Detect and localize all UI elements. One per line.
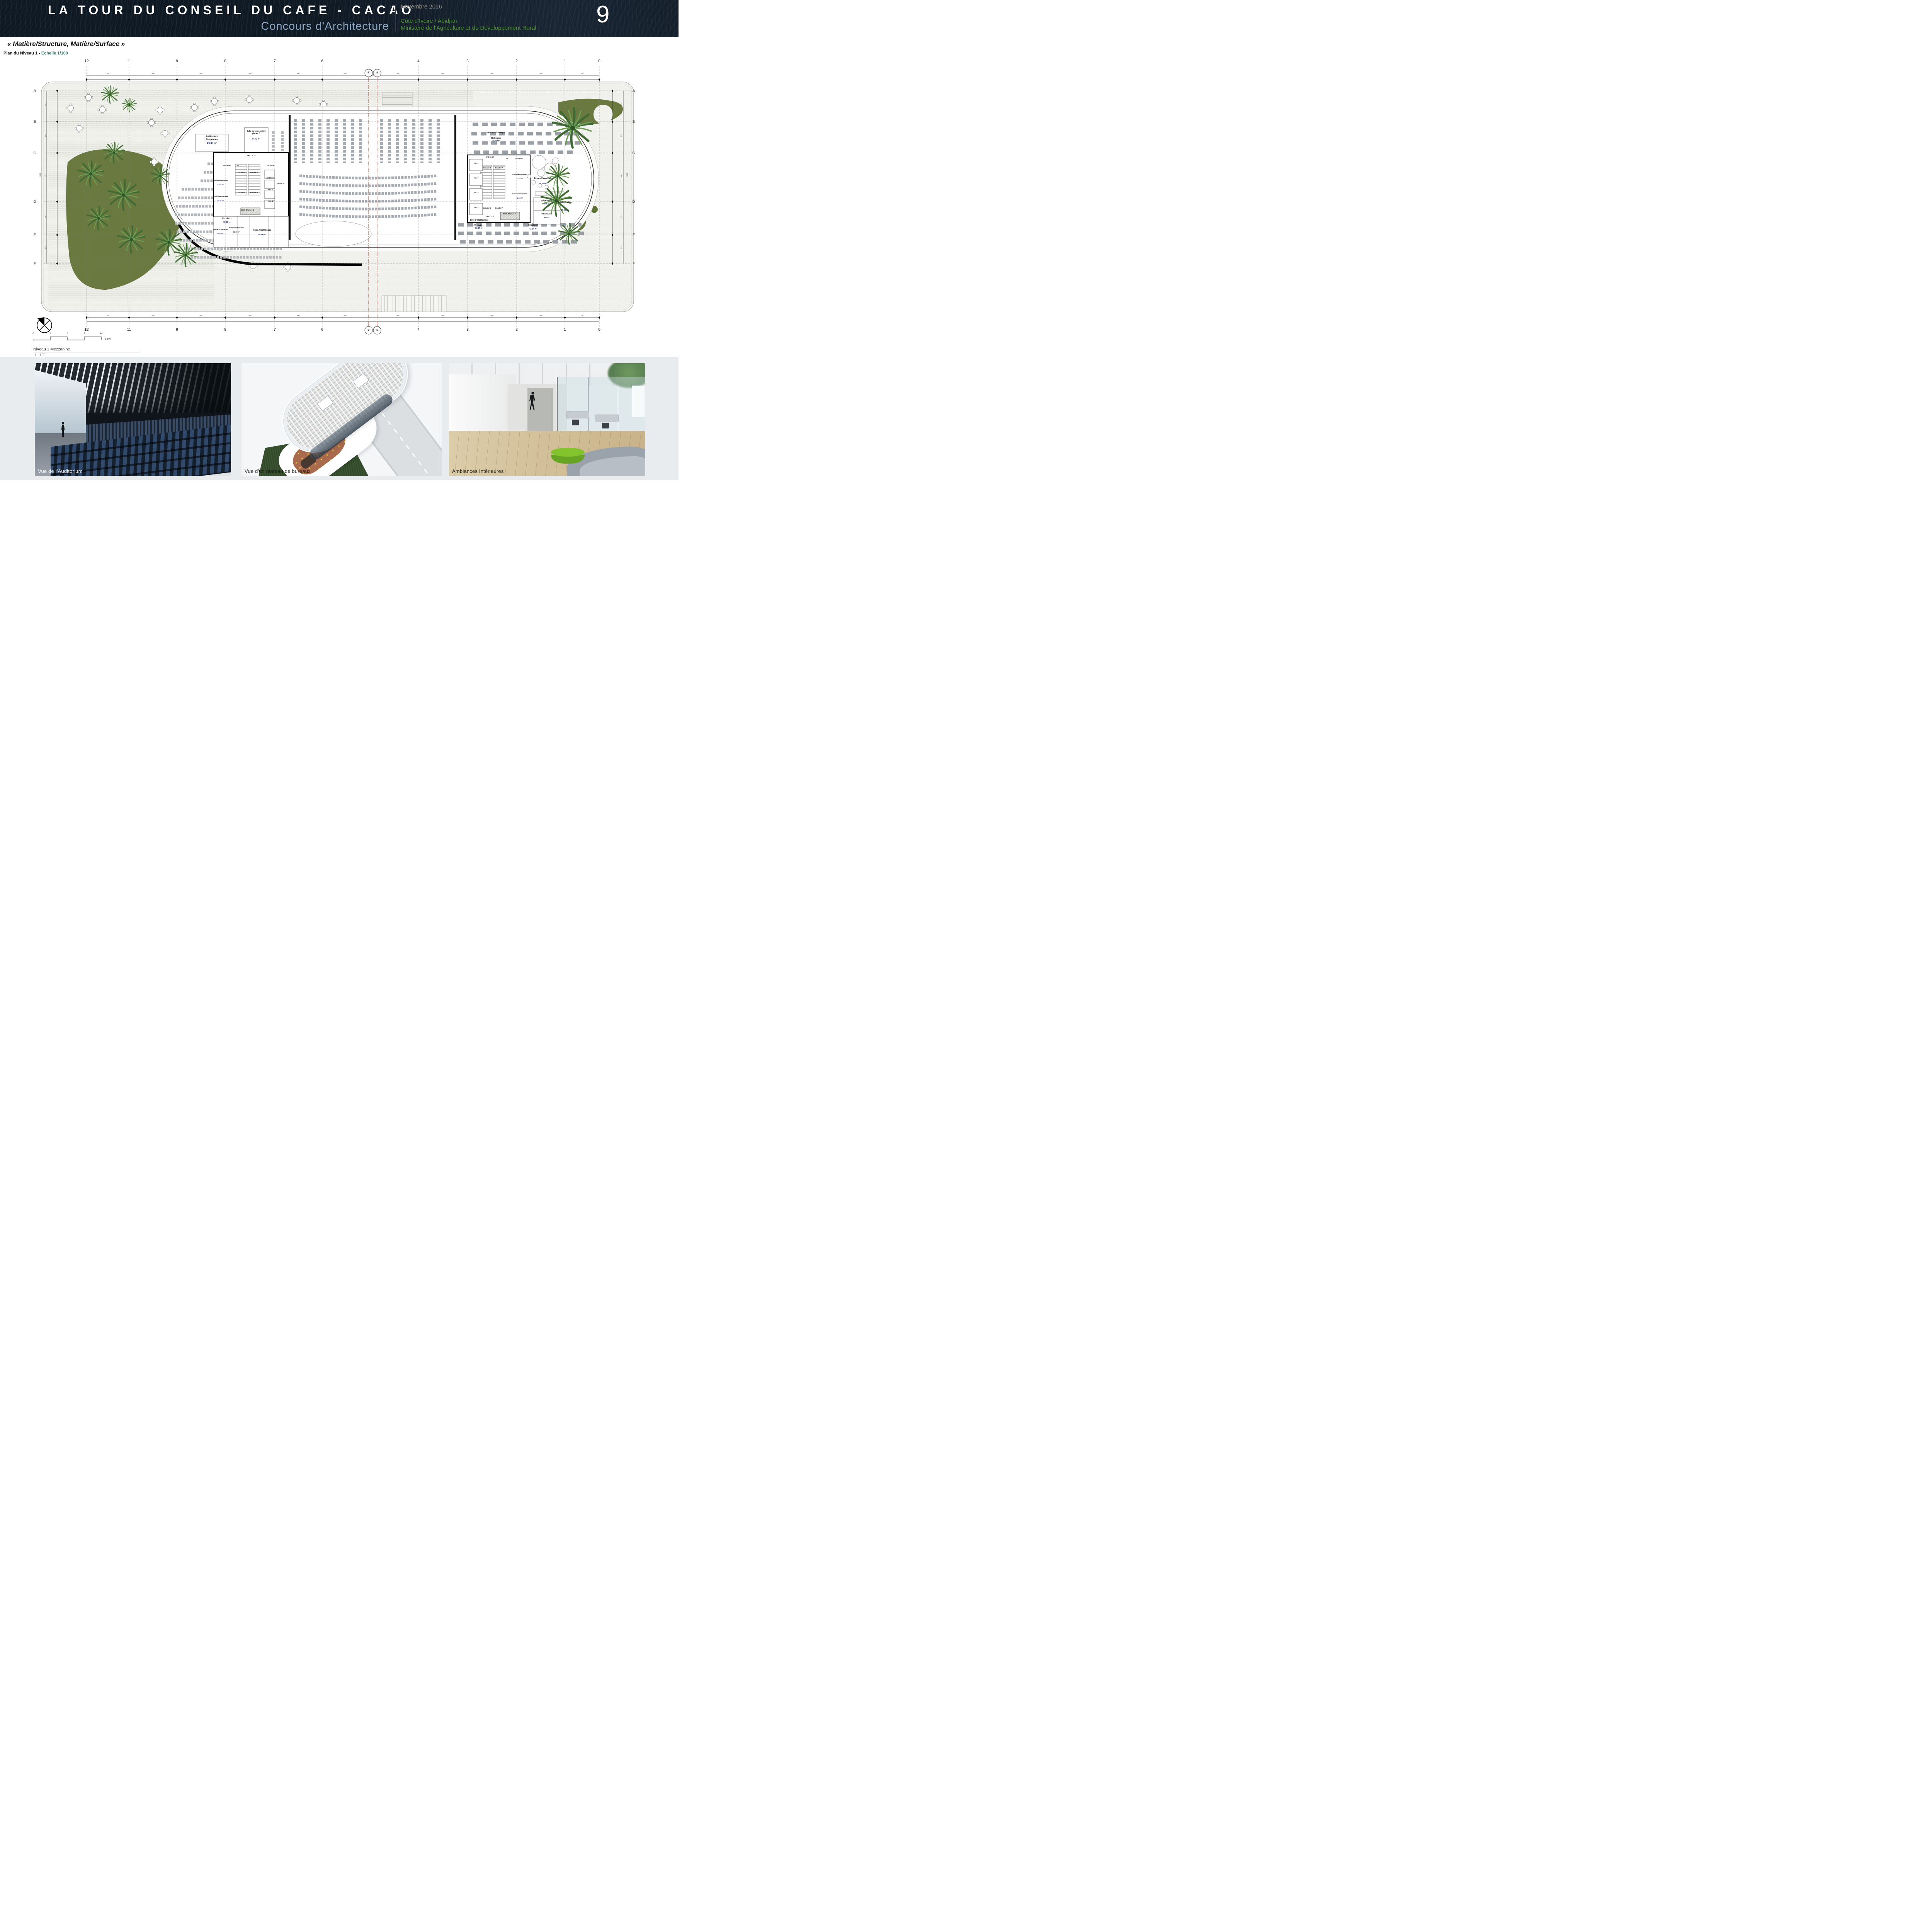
project-title: LA TOUR DU CONSEIL DU CAFE - CACAO (48, 3, 396, 17)
competition-board: LA TOUR DU CONSEIL DU CAFE - CACAO Conco… (0, 0, 679, 480)
photo-aerial-render: Vue d'un plateau de bureaux (241, 363, 442, 476)
green-ottoman-top (551, 448, 584, 457)
plan-subtitle: Plan du Niveau 1 - Echelle 1/100 (3, 51, 68, 56)
office-desk (595, 415, 618, 422)
date-label: Novembre 2016 (401, 3, 442, 10)
person-silhouette (60, 422, 66, 438)
office-chair (572, 420, 579, 425)
glass-partition (557, 377, 645, 440)
ministry-label: Ministère de l'Agriculture et du Dévelop… (401, 25, 536, 31)
page-number: 9 (596, 1, 609, 28)
floor-plan-drawing (33, 58, 642, 362)
person-silhouette (529, 390, 536, 413)
scale-label: Echelle 1/100 (41, 51, 68, 56)
office-desk (566, 411, 588, 418)
photo-caption: Ambiances Intérieures (452, 468, 504, 474)
header-divider (395, 5, 396, 32)
photo-caption: Vue de l'Auditorium (38, 468, 83, 474)
photo-caption: Vue d'un plateau de bureaux (245, 468, 311, 474)
section-title: « Matière/Structure, Matière/Surface » (7, 40, 125, 48)
north-arrow-icon (37, 317, 52, 333)
photo-auditorium: Vue de l'Auditorium (35, 363, 231, 476)
scale-bar (33, 337, 101, 340)
location-label: Côte d'Ivoire / Abidjan (401, 18, 457, 24)
floor-plan-svg (33, 58, 642, 362)
plan-label: Plan du Niveau 1 - (3, 51, 41, 56)
competition-subtitle: Concours d'Architecture (201, 20, 389, 33)
header-banner: LA TOUR DU CONSEIL DU CAFE - CACAO Conco… (0, 0, 679, 37)
office-window (632, 386, 645, 417)
service-core (317, 396, 333, 411)
photo-interior: Ambiances Intérieures (449, 363, 645, 476)
service-core (352, 373, 369, 389)
office-chair (602, 423, 609, 428)
